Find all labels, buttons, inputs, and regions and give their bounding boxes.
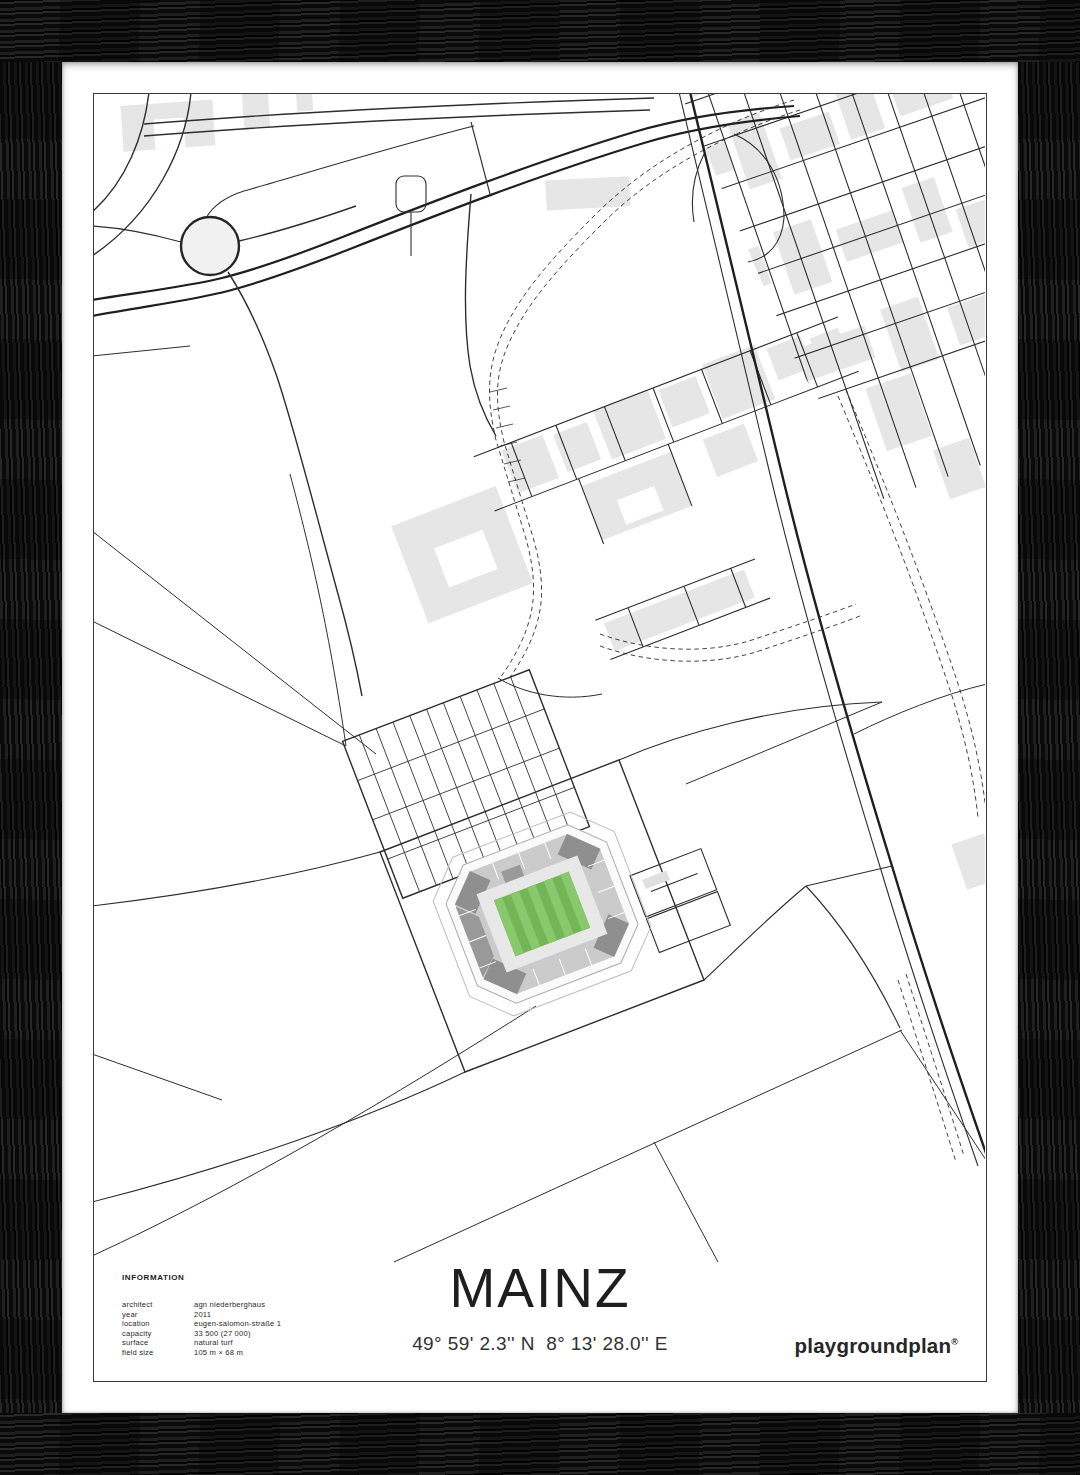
large-building [391,486,533,623]
district-buildings [617,94,988,425]
railway-diagonal [679,94,987,1166]
registered-mark: ® [951,1337,958,1347]
right-building [951,833,988,889]
frame-top [0,0,1080,62]
middiag-buildings [865,362,986,514]
long-building [604,570,755,652]
poster: INFORMATION architect agn niederberghaus… [62,62,1018,1413]
frame-left [0,0,62,1475]
north-south-road [465,194,496,436]
city-map-graphic [94,94,988,1383]
info-label: location [122,1320,194,1327]
map-border [93,93,987,1382]
brand-logo: playgroundplan® [795,1334,958,1358]
framed-poster: INFORMATION architect agn niederberghaus… [0,0,1080,1475]
small-loop-building [396,176,426,256]
stadium-graphic [421,800,663,1028]
paddocks [630,849,730,953]
road-southeast-from-roundabout [228,272,362,696]
page-title: MAINZ [62,1261,1018,1316]
info-value: eugen-salomon-straße 1 [194,1320,281,1327]
brand-text: playgroundplan [795,1334,952,1357]
frame-right [1018,0,1080,1475]
campus-buildings [498,315,878,563]
tram-dashed-path [490,100,987,1162]
frame-bottom [0,1413,1080,1475]
title-block: MAINZ [62,1261,1018,1316]
